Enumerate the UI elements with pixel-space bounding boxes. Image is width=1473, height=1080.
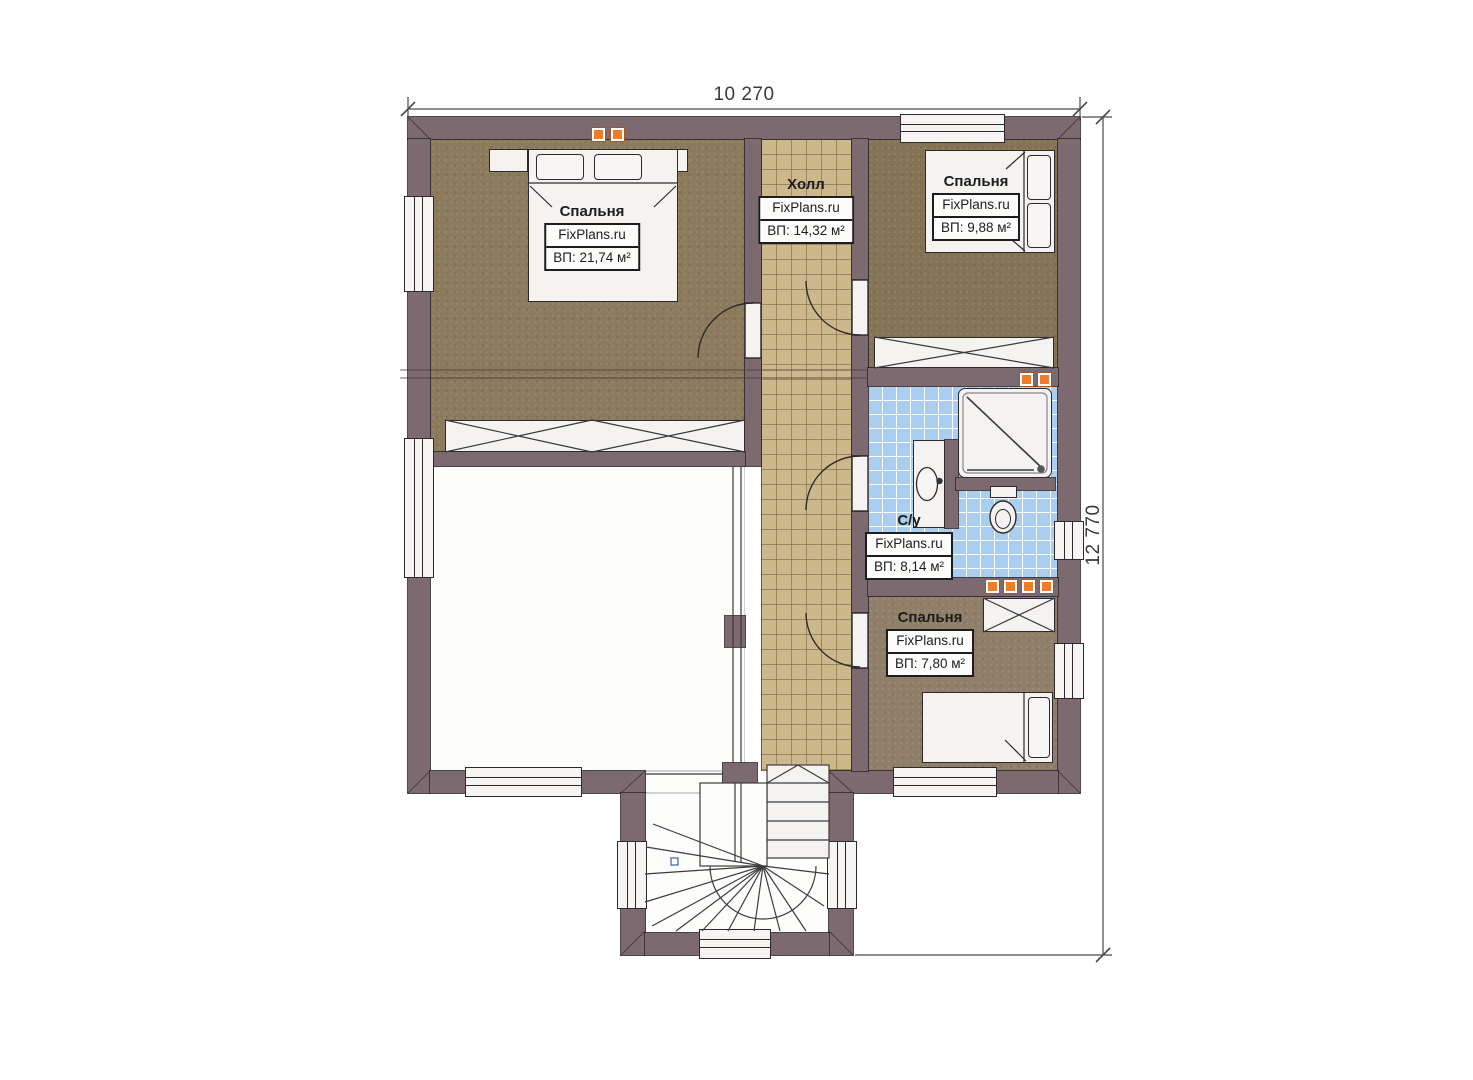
brand-text: FixPlans.ru [888,631,972,652]
shower-tray [958,388,1052,478]
wardrobe-bedroom-3 [983,598,1055,632]
window-top-bedroom2 [900,114,1005,143]
window-bottom-bedroom3 [893,767,997,797]
vent-marker [611,128,624,141]
room-name: Спальня [560,203,625,220]
vent-marker [1040,580,1053,593]
void-room-floor [430,466,745,771]
railing-post [725,616,745,647]
window-left-upper [404,196,434,292]
pillow [1027,155,1051,200]
room-area: ВП: 8,14 м² [867,555,951,578]
room-name: С/у [897,512,920,529]
hall-right-wall-2 [852,335,868,455]
wardrobe-bedroom-1 [445,420,745,452]
hall-left-wall-mid [745,358,761,466]
label-bedroom-1: Спальня FixPlans.ru ВП: 21,74 м² [544,203,640,271]
stair-bay-floor [645,793,829,933]
bedroom-1-bottom-wall [430,452,745,466]
void-edge-strip [645,771,723,793]
room-info-box: FixPlans.ru ВП: 14,32 м² [758,196,854,244]
room-name: Холл [787,176,825,193]
window-bay-bottom [699,929,771,959]
window-bottom-left [465,767,582,797]
brand-text: FixPlans.ru [546,225,638,246]
room-info-box: FixPlans.ru ВП: 8,14 м² [865,532,953,580]
room-area: ВП: 7,80 м² [888,652,972,675]
window-bay-left [617,841,647,909]
stair-landing-stub [723,763,757,795]
label-hall: Холл FixPlans.ru ВП: 14,32 м² [758,176,854,244]
vent-marker [1020,373,1033,386]
window-bay-right [827,841,857,909]
label-bedroom-3: Спальня FixPlans.ru ВП: 7,80 м² [886,609,974,677]
vent-marker [1022,580,1035,593]
room-info-box: FixPlans.ru ВП: 7,80 м² [886,629,974,677]
window-right-bathroom [1054,521,1084,560]
wardrobe-bedroom-2 [874,337,1054,368]
room-name: Спальня [944,173,1009,190]
brand-text: FixPlans.ru [760,198,852,219]
pillow [1028,697,1050,758]
pillow [1027,203,1051,248]
hall-right-wall-1 [852,139,868,279]
room-info-box: FixPlans.ru ВП: 9,88 м² [932,193,1020,241]
window-left-lower [404,438,434,578]
brand-text: FixPlans.ru [867,534,951,555]
room-area: ВП: 21,74 м² [546,246,638,269]
window-right-bedroom3 [1054,643,1084,699]
toilet-tank [990,486,1017,498]
vent-marker [986,580,999,593]
label-bathroom: С/у FixPlans.ru ВП: 8,14 м² [865,512,953,580]
label-bedroom-2: Спальня FixPlans.ru ВП: 9,88 м² [932,173,1020,241]
hall-right-wall-4 [852,669,868,771]
pillow [594,154,642,180]
vent-marker [1004,580,1017,593]
room-info-box: FixPlans.ru ВП: 21,74 м² [544,223,640,271]
room-area: ВП: 9,88 м² [934,216,1018,239]
dimension-height: 12 770 [1083,435,1105,635]
vent-marker [1038,373,1051,386]
nightstand-left [489,149,528,172]
floor-plan-page: { "plan": { "brand": "FixPlans.ru", "dim… [0,0,1473,1080]
dimension-width: 10 270 [644,84,844,106]
room-name: Спальня [898,609,963,626]
vent-marker [592,128,605,141]
pillow [536,154,584,180]
room-area: ВП: 14,32 м² [760,219,852,242]
brand-text: FixPlans.ru [934,195,1018,216]
